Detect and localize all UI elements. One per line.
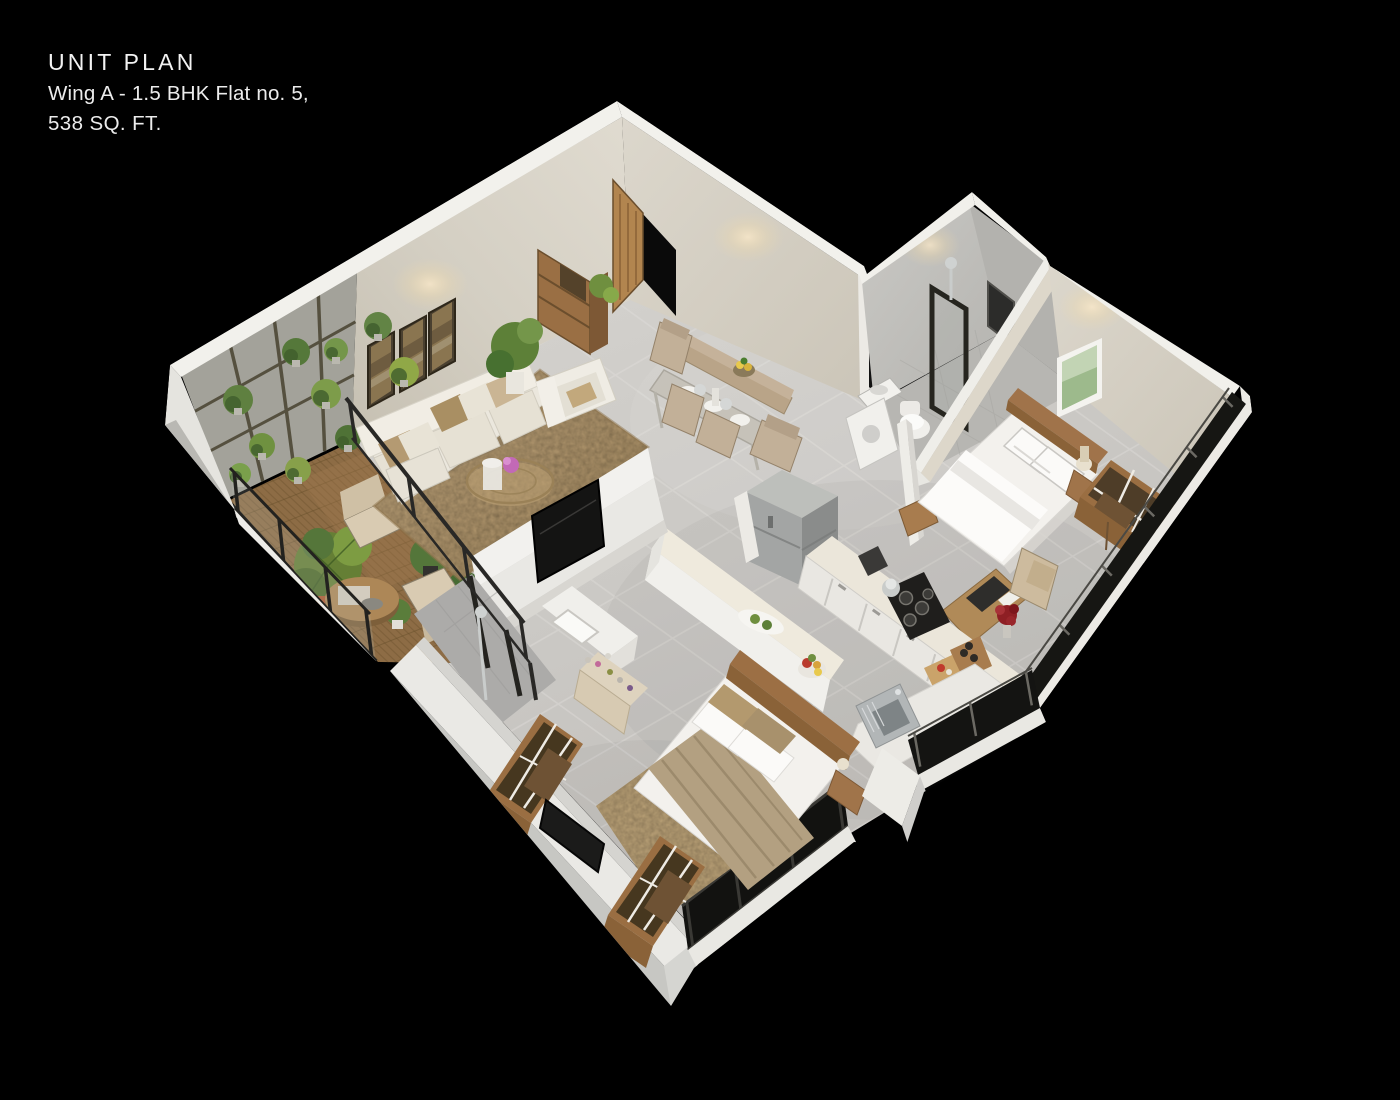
svg-text:538 SQ. FT.: 538 SQ. FT.	[48, 112, 162, 135]
svg-text:UNIT PLAN: UNIT PLAN	[48, 49, 197, 75]
svg-text:Wing A - 1.5 BHK Flat no. 5,: Wing A - 1.5 BHK Flat no. 5,	[48, 82, 309, 105]
